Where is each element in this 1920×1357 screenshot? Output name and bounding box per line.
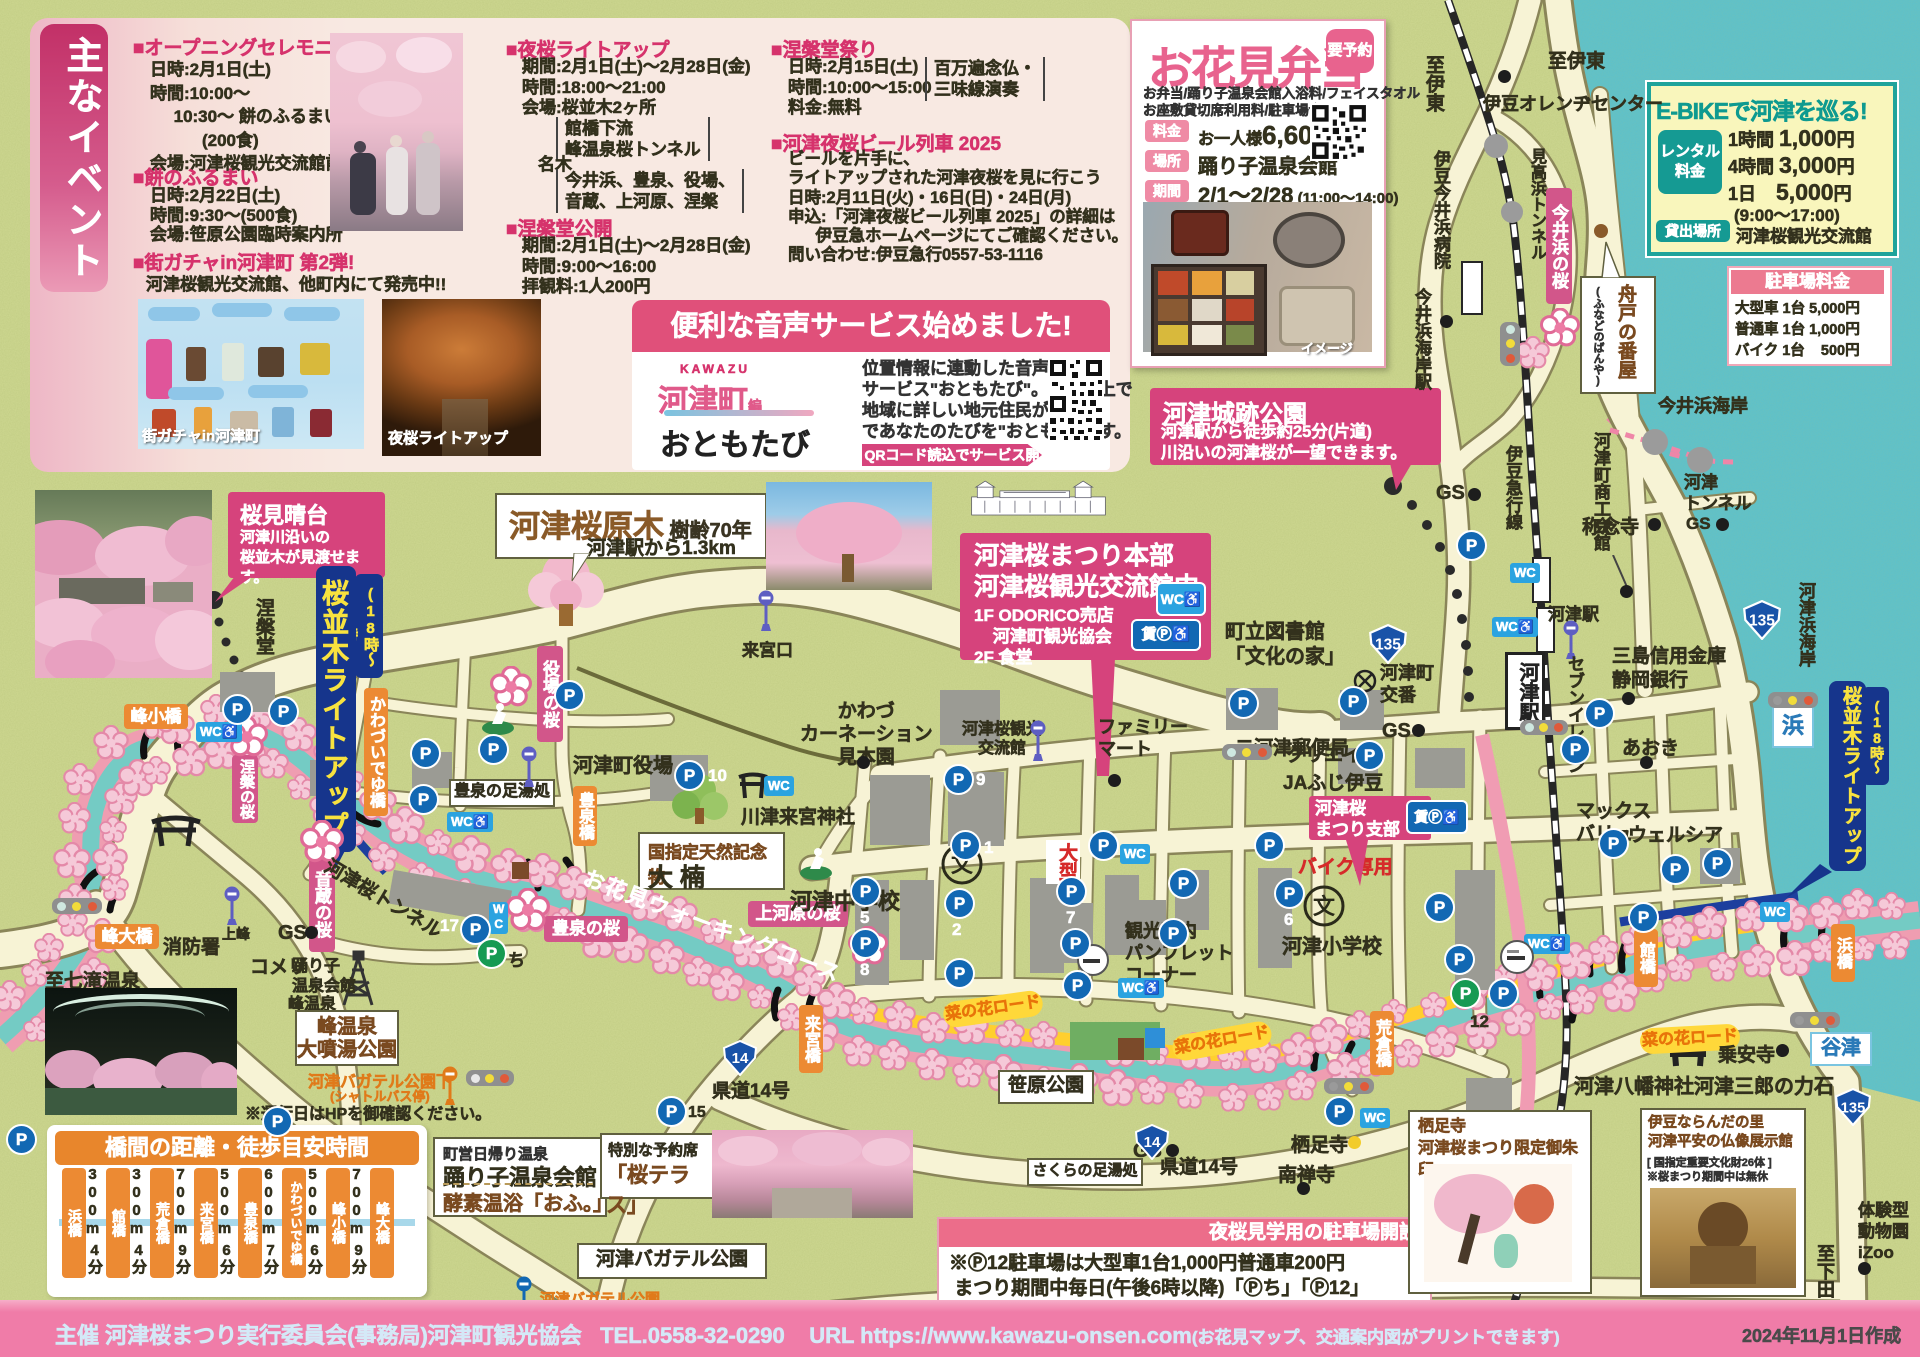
svg-text:14: 14 <box>1144 1134 1161 1151</box>
svg-text:135: 135 <box>1375 637 1401 654</box>
svg-text:14: 14 <box>732 1050 749 1067</box>
svg-text:文: 文 <box>1313 894 1336 919</box>
svg-text:135: 135 <box>1841 1100 1866 1116</box>
svg-text:135: 135 <box>1749 613 1775 630</box>
